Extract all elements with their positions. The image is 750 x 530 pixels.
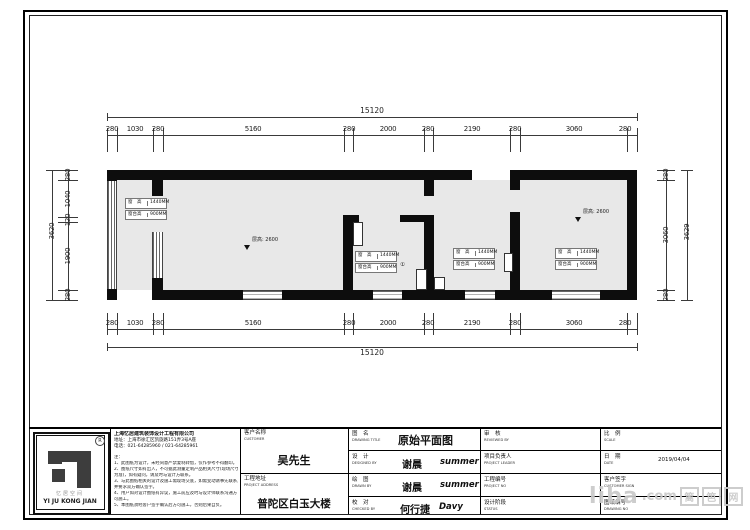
sill-height-label: 窗台高 xyxy=(126,213,148,218)
dim-seg: 1900 xyxy=(64,242,72,270)
wall-d-stub-top xyxy=(510,180,520,190)
designed-by-value: 谢晨 xyxy=(402,456,422,471)
column-fixture-1 xyxy=(416,269,427,290)
grid-line xyxy=(240,473,348,474)
sill-height-row: 窗台高900MM xyxy=(453,260,495,271)
window-label-group-3: 窗 高1440MM 窗台高900MM xyxy=(453,248,495,271)
watermark-cn-box: 网 xyxy=(724,487,743,506)
dim-seg: 280 xyxy=(611,319,639,327)
customer-name: 吴先生 xyxy=(240,452,348,468)
checked-by-signature: Davy xyxy=(439,502,463,512)
watermark-cn-box: 笆 xyxy=(702,487,721,506)
sill-height-value: 900MM xyxy=(476,263,494,268)
window-bottom-2 xyxy=(373,290,402,300)
grid-line xyxy=(480,427,481,514)
wall-b xyxy=(343,215,353,290)
project-no-label-en: PROJECT NO xyxy=(484,484,506,488)
registered-mark-icon: R xyxy=(95,436,105,446)
dim-seg: 5160 xyxy=(239,125,267,133)
dim-tick xyxy=(107,343,108,351)
grid-line xyxy=(348,450,721,451)
level-marker-icon xyxy=(575,217,581,222)
dim-tick xyxy=(46,170,58,171)
wall-a-stub-top xyxy=(152,180,163,196)
window-label-group-1: 窗 高1440MM 窗台高900MM xyxy=(125,198,167,221)
dim-seg: 3060 xyxy=(560,319,588,327)
logo-english-text: YI JU KONG JIAN xyxy=(35,498,105,505)
logo-glyph-icon xyxy=(77,462,91,488)
ceiling-height-label: 层高: 2600 xyxy=(252,236,278,243)
company-info: 上海忆居建筑装饰设计工程有限公司 地址：上海市徐汇区凯旋路151弄3号A座 电话… xyxy=(114,431,238,513)
note-line: 3、与此图纸相关的设计及施工需现场交底，如需变动请事先联系， xyxy=(114,479,238,485)
dim-total-right: 3629 xyxy=(683,218,691,246)
drawn-by-signature: summer xyxy=(440,480,479,490)
note-line: 5、本图纸须经客户签字确认后方可施工，否则后果自负。 xyxy=(114,503,238,509)
dim-seg: 280 xyxy=(335,125,363,133)
wall-right xyxy=(627,170,637,300)
logo-glyph-icon xyxy=(52,469,65,482)
titleblock-top-line xyxy=(29,427,721,429)
dim-tick xyxy=(681,300,693,301)
dim-line xyxy=(107,117,637,118)
window-height-value: 1440MM xyxy=(578,251,596,256)
dim-seg: 280 xyxy=(144,125,172,133)
dim-seg: 280 xyxy=(414,125,442,133)
level-marker-icon xyxy=(244,245,250,250)
wall-a-window xyxy=(152,232,163,278)
window-height-row: 窗 高1440MM xyxy=(555,248,597,259)
date-label-en: DATE xyxy=(604,461,613,465)
project-leader-label-en: PROJECT LEADER xyxy=(484,461,515,465)
dim-seg: 2000 xyxy=(374,125,402,133)
window-height-label: 窗 高 xyxy=(126,201,148,206)
dim-tick xyxy=(46,300,58,301)
dim-seg: 280 xyxy=(64,281,72,309)
grid-line xyxy=(110,427,111,514)
dim-seg: 280 xyxy=(501,125,529,133)
window-height-label: 窗 高 xyxy=(356,254,378,259)
note-line: 1、此图纸为设计，未经同意严禁复制转借，仅作参考不得翻印。 xyxy=(114,461,238,467)
drawn-by-label-en: DRAWN BY xyxy=(352,484,371,488)
sill-height-row: 窗台高900MM xyxy=(125,210,167,221)
window-height-label: 窗 高 xyxy=(454,251,476,256)
door-leaf-middle-room xyxy=(353,222,363,246)
sill-height-value: 900MM xyxy=(578,263,596,268)
sill-height-label: 窗台高 xyxy=(556,263,578,268)
window-left-wall xyxy=(107,181,117,289)
dim-tick xyxy=(681,170,693,171)
dim-seg: 280 xyxy=(501,319,529,327)
wall-a-stub-bottom xyxy=(152,278,163,290)
circle-mark: ① xyxy=(400,262,405,268)
scale-label-en: SCALE xyxy=(604,438,616,442)
window-label-group-4: 窗 高1440MM 窗台高900MM xyxy=(555,248,597,271)
window-bottom-4 xyxy=(552,290,600,300)
drawn-by-value: 谢晨 xyxy=(402,479,422,494)
grid-line xyxy=(348,473,721,474)
reviewed-by-label-en: REVIEWED BY xyxy=(484,438,509,442)
customer-label-en: CUSTOMER xyxy=(244,437,264,441)
wall-d xyxy=(510,212,520,290)
window-height-row: 窗 高1440MM xyxy=(453,248,495,259)
window-height-value: 1440MM xyxy=(378,254,396,259)
liba-watermark: liba .com 篱 笆 网 xyxy=(589,484,743,509)
dim-tick xyxy=(107,113,108,121)
window-bottom-1 xyxy=(243,290,282,300)
grid-line xyxy=(348,427,349,514)
project-address-value: 普陀区白玉大楼 xyxy=(240,496,348,511)
wall-top-left xyxy=(107,170,472,180)
dim-seg: 120 xyxy=(64,206,72,234)
note-line: 4、用户如对设计图纸有异议，施工前应及时与设计师联系沟通方 xyxy=(114,491,238,497)
logo-glyph-icon xyxy=(48,451,62,464)
wall-c-stub-top xyxy=(424,180,434,196)
dim-tick xyxy=(637,343,638,351)
dim-seg: 2190 xyxy=(458,125,486,133)
window-height-row: 窗 高1440MM xyxy=(125,198,167,209)
door-leaf-right-room xyxy=(504,253,513,272)
dim-seg: 280 xyxy=(662,281,670,309)
designed-by-label-en: DESIGNED BY xyxy=(352,461,377,465)
dim-seg: 3060 xyxy=(560,125,588,133)
window-bottom-3 xyxy=(465,290,495,300)
dim-tick xyxy=(637,113,638,121)
sill-height-row: 窗台高900MM xyxy=(355,263,397,274)
sill-height-value: 900MM xyxy=(378,266,396,271)
dim-seg: 3060 xyxy=(662,221,670,249)
sill-height-value: 900MM xyxy=(148,213,166,218)
window-height-value: 1440MM xyxy=(148,201,166,206)
window-label-group-2: 窗 高1440MM 窗台高900MM xyxy=(355,251,397,274)
room-top-wall-left xyxy=(343,215,359,222)
dim-seg: 280 xyxy=(611,125,639,133)
drawing-title-value: 原始平面图 xyxy=(398,432,453,448)
dim-seg: 280 xyxy=(335,319,363,327)
sill-height-label: 窗台高 xyxy=(356,266,378,271)
date-value: 2019/04/04 xyxy=(658,457,690,463)
logo-chinese-text: 忆居空间 xyxy=(35,490,105,497)
dim-seg: 2190 xyxy=(458,319,486,327)
sill-height-label: 窗台高 xyxy=(454,263,476,268)
dim-total-bottom: 15120 xyxy=(347,349,397,357)
dim-seg: 5160 xyxy=(239,319,267,327)
window-height-row: 窗 高1440MM xyxy=(355,251,397,262)
wall-top-right xyxy=(510,170,637,180)
window-height-value: 1440MM xyxy=(476,251,494,256)
sill-height-row: 窗台高900MM xyxy=(555,260,597,271)
window-height-label: 窗 高 xyxy=(556,251,578,256)
logo-box: R 忆居空间 YI JU KONG JIAN xyxy=(33,432,110,515)
drawing-sheet: 窗 高1440MM 窗台高900MM 窗 高1440MM 窗台高900MM 窗 … xyxy=(0,0,750,530)
dim-seg: 2000 xyxy=(374,319,402,327)
watermark-cn-box: 篱 xyxy=(680,487,699,506)
dim-line xyxy=(107,135,637,136)
dim-seg: 280 xyxy=(414,319,442,327)
logo-glyph-icon xyxy=(62,451,91,462)
project-address-label-en: PROJECT ADDRESS xyxy=(244,483,278,487)
ceiling-height-label: 层高: 2600 xyxy=(583,208,609,215)
note-line: 2、图纸尺寸如有出入，不可据此测量定制产品相关尺寸(现场尺寸 xyxy=(114,467,238,473)
column-fixture-2 xyxy=(434,277,445,290)
dim-total-left: 3620 xyxy=(48,217,56,245)
drawing-title-label-en: DRAWING TITLE xyxy=(352,438,380,442)
watermark-suffix-text: .com xyxy=(642,489,677,504)
status-label-en: STATUS xyxy=(484,507,498,511)
watermark-main-text: liba xyxy=(589,484,639,509)
checked-by-label-en: CHECKED BY xyxy=(352,507,375,511)
designed-by-signature: summer xyxy=(440,457,479,467)
checked-by-value: 何行捷 xyxy=(400,501,430,516)
dim-total-top: 15120 xyxy=(347,107,397,115)
dim-line xyxy=(107,329,637,330)
dim-seg: 280 xyxy=(662,161,670,189)
dim-seg: 280 xyxy=(144,319,172,327)
